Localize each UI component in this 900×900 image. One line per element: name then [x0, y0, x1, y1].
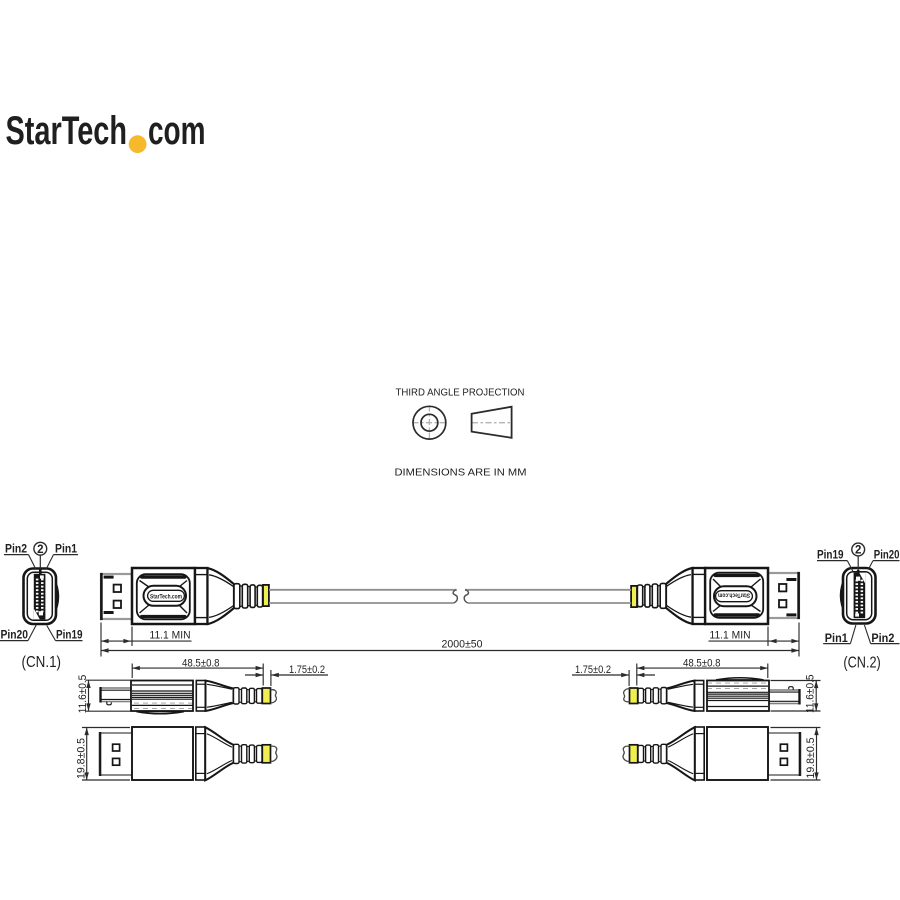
- svg-text:Pin1: Pin1: [55, 544, 78, 556]
- svg-text:Pin20: Pin20: [874, 550, 900, 562]
- svg-text:2: 2: [37, 544, 43, 556]
- svg-text:(CN.1): (CN.1): [22, 654, 62, 671]
- svg-text:48.5±0.8: 48.5±0.8: [683, 657, 721, 669]
- svg-text:Pin2: Pin2: [5, 544, 27, 556]
- svg-text:19.8±0.5: 19.8±0.5: [805, 738, 817, 779]
- svg-text:com: com: [148, 109, 206, 153]
- svg-text:1.75±0.2: 1.75±0.2: [289, 664, 325, 676]
- svg-text:Pin19: Pin19: [56, 630, 83, 642]
- svg-text:Pin20: Pin20: [1, 630, 29, 642]
- svg-text:11.6±0.5: 11.6±0.5: [77, 675, 89, 714]
- svg-text:11.6±0.5: 11.6±0.5: [804, 675, 816, 714]
- svg-text:THIRD ANGLE PROJECTION: THIRD ANGLE PROJECTION: [396, 387, 525, 399]
- svg-text:48.5±0.8: 48.5±0.8: [182, 657, 220, 669]
- svg-text:1.75±0.2: 1.75±0.2: [575, 664, 611, 676]
- svg-text:2000±50: 2000±50: [442, 639, 483, 651]
- svg-text:11.1 MIN: 11.1 MIN: [710, 630, 751, 642]
- svg-text:11.1 MIN: 11.1 MIN: [150, 630, 191, 642]
- svg-text:19.8±0.5: 19.8±0.5: [76, 738, 88, 779]
- svg-text:2: 2: [855, 545, 861, 557]
- svg-text:StarTech: StarTech: [6, 109, 128, 153]
- svg-text:Pin19: Pin19: [817, 550, 844, 562]
- svg-text:DIMENSIONS ARE IN MM: DIMENSIONS ARE IN MM: [395, 467, 527, 479]
- svg-text:(CN.2): (CN.2): [843, 654, 880, 671]
